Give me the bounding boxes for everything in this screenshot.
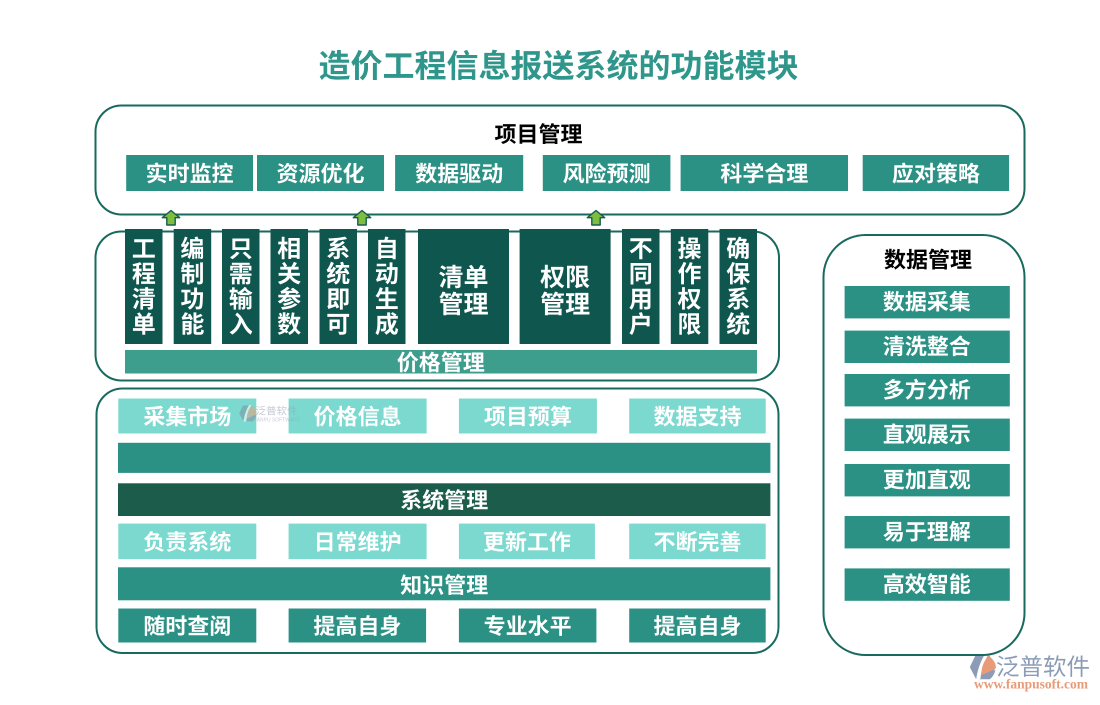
svg-text:FANPU SOFTWARE: FANPU SOFTWARE [254,417,301,423]
svg-text:www.fanpusoft.com: www.fanpusoft.com [974,677,1089,692]
